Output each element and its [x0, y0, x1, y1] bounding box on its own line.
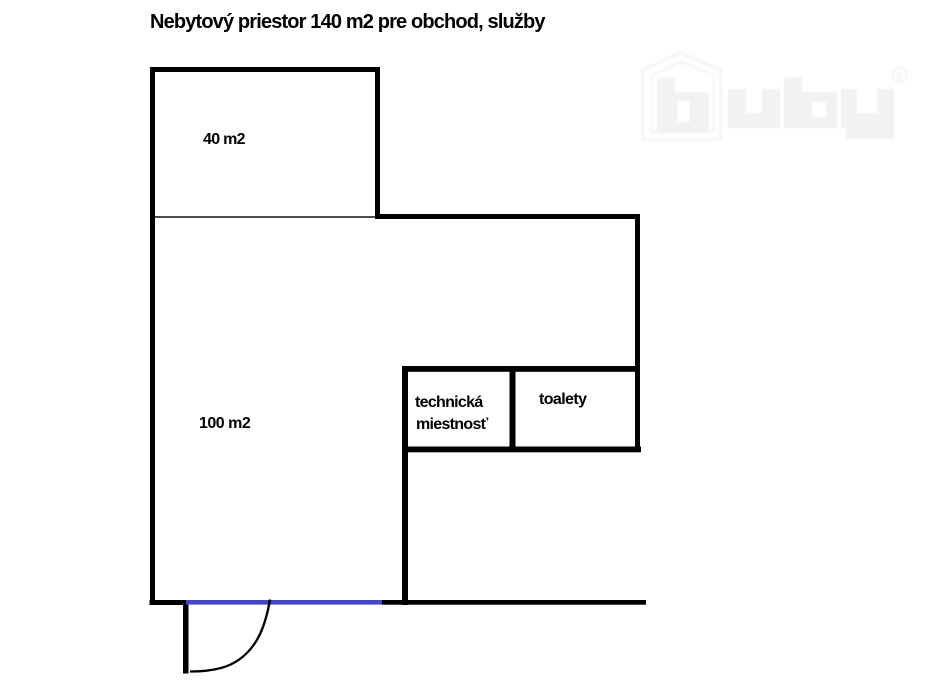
svg-text:R: R [896, 72, 904, 83]
